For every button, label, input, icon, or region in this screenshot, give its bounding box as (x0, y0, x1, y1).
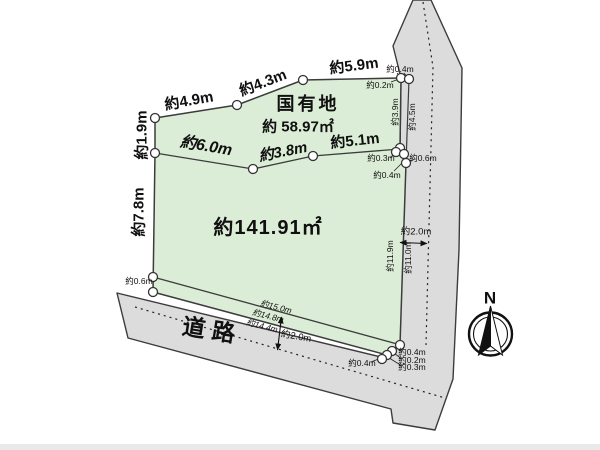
offset-top-02: 約0.2m (366, 81, 393, 90)
land-plot-diagram: 約4.9m 約4.3m 約5.9m 約1.9m 約7.8m 約6.0m 約3.8… (0, 0, 600, 450)
offset-mid-03: 約0.3m (367, 154, 394, 163)
national-land-title: 国有地 (277, 95, 340, 113)
offset-mid-04: 約0.4m (373, 171, 400, 180)
dim-right-45: 約4.5m (408, 103, 417, 130)
compass-north-label: N (484, 290, 496, 307)
dim-right-119: 約11.9m (386, 240, 395, 272)
offset-left-06: 約0.6m (125, 277, 152, 286)
dim-left-2: 約7.8m (132, 187, 147, 236)
offset-top-04: 約0.4m (386, 65, 413, 74)
offset-mid-06: 約0.6m (409, 154, 436, 163)
offset-se-03: 約0.3m (398, 363, 425, 372)
dim-right-39: 約3.9m (391, 98, 400, 125)
right-road-width-label: 約2.0m (401, 227, 432, 237)
compass (469, 306, 512, 356)
main-parcel-area: 約141.91㎡ (213, 218, 322, 238)
bottom-edge-band (0, 444, 600, 450)
offset-se-left-04: 約0.4m (348, 359, 375, 368)
dim-right-110: 約11.0m (404, 242, 413, 274)
dim-left-1: 約1.9m (135, 110, 150, 159)
national-land-area: 約 58.97㎡ (262, 120, 334, 135)
